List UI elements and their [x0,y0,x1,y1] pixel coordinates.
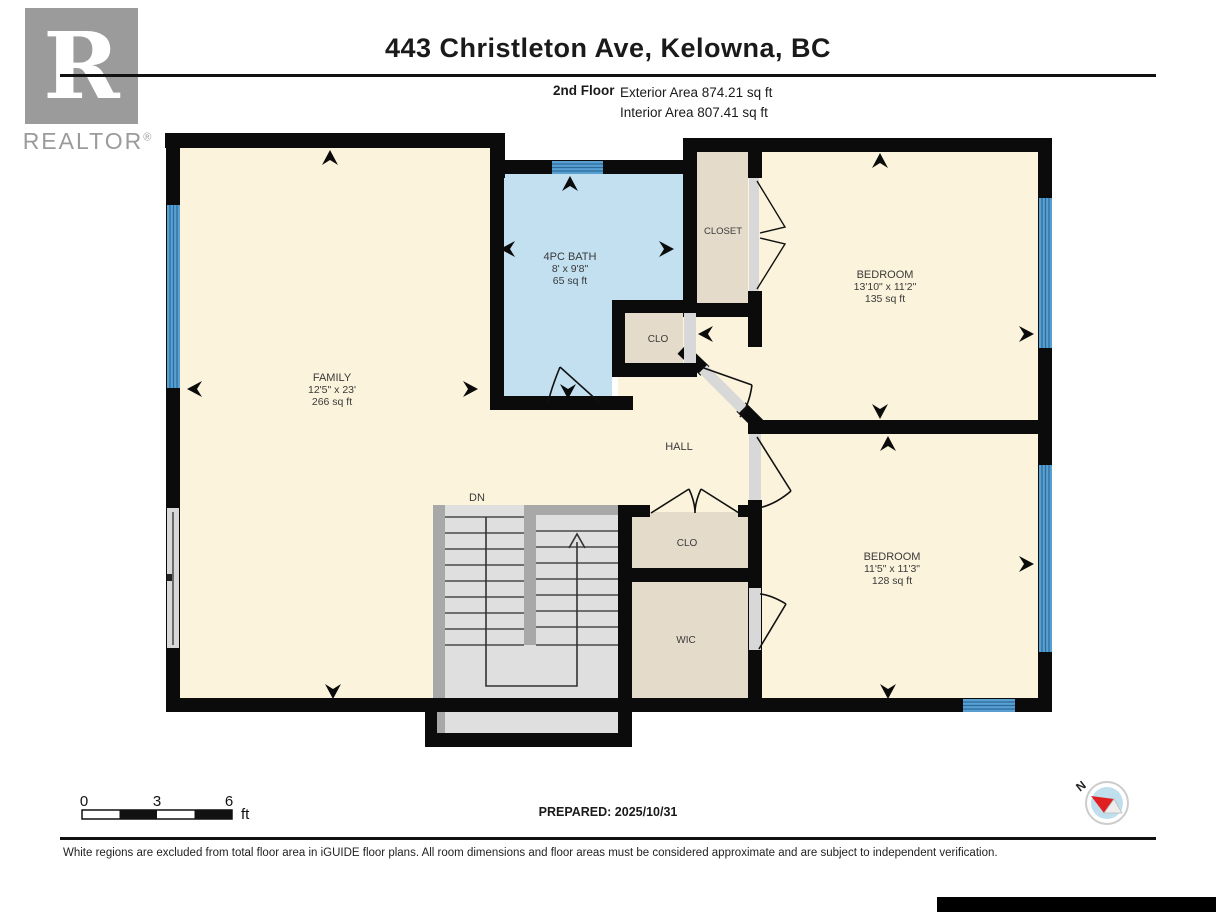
stair-top-strip [524,505,618,515]
wall-bath-right [683,152,697,313]
floorplan-page: R REALTOR® 443 Christleton Ave, Kelowna,… [0,0,1216,912]
bottom-right-black-bar [937,897,1216,912]
wic-label: WIC [676,635,695,646]
opening-clo-bath [684,313,696,363]
wall-closet-stub-top [748,152,762,178]
wall-stairs-right [618,505,632,745]
opening-bedroom2-door [749,434,761,500]
window-bedroom2-right [1039,465,1052,652]
hall-label: HALL [665,441,693,453]
bedroom1-label: BEDROOM [857,269,914,281]
corridor-area [437,404,618,505]
closet-label: CLOSET [704,226,742,237]
opening-closet [749,178,759,291]
opening-wic-door [749,588,761,650]
window-bath-top [552,161,603,174]
floorplan-canvas: FAMILY 12'5" x 23' 266 sq ft 4PC BATH 8'… [0,0,1216,912]
bath-dims: 8' x 9'8" [552,263,589,275]
disclaimer-text: White regions are excluded from total fl… [63,847,998,859]
slider-notch [167,574,172,581]
wall-top-right [683,138,1052,152]
wall-bottom [166,698,1052,712]
wall-stairbump-bottom [425,733,632,747]
bedroom1-area: 135 sq ft [865,293,905,305]
wall-bath-bottom [490,396,633,410]
wall-step [490,133,505,178]
stairs-dn-label: DN [469,492,485,504]
compass-north-label: N [1073,778,1088,794]
family-label: FAMILY [313,372,352,384]
window-family-left [167,205,180,388]
window-bedroom1-right [1039,198,1052,348]
wall-clo2-bottom [618,568,762,582]
clo-bath-label: CLO [648,334,669,345]
wall-top-family [165,133,505,148]
wall-clo1-top [612,300,683,313]
family-dims: 12'5" x 23' [308,384,356,396]
wall-clo2-stub-right [738,505,762,517]
bedroom2-label: BEDROOM [864,551,921,563]
window-bedroom2-bottom [963,699,1015,712]
wall-clo1-bottom [612,363,697,377]
bath-area: 65 sq ft [553,275,588,287]
wall-bath-left [490,174,504,410]
bedroom2-area: 128 sq ft [872,575,912,587]
footer-divider [60,837,1156,840]
bath-label: 4PC BATH [544,251,597,263]
wall-bedroom-divider [748,420,1038,434]
clo-hall-label: CLO [677,538,698,549]
prepared-date: PREPARED: 2025/10/31 [0,805,1216,819]
bedroom1-dims: 13'10" x 11'2" [854,281,917,293]
wall-bedroom1-left-stub [748,317,762,347]
family-area: 266 sq ft [312,396,352,408]
bedroom2-dims: 11'5" x 11'3" [864,563,920,575]
stair-divider-strip [524,505,536,645]
